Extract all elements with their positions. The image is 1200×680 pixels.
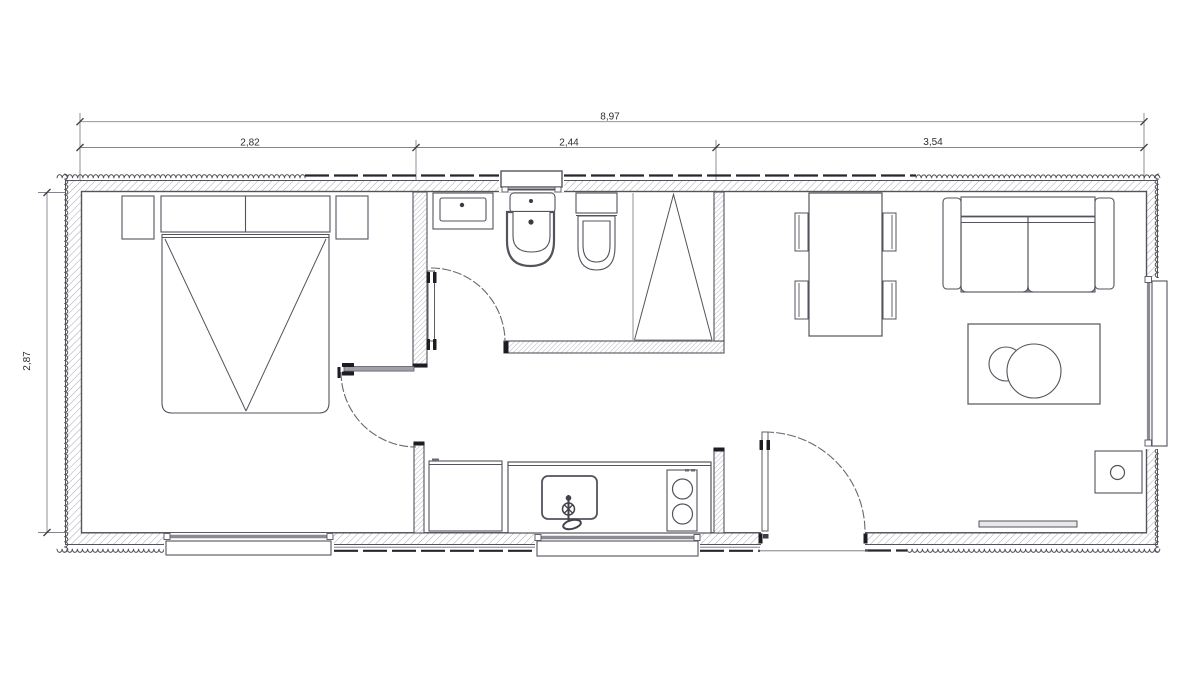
svg-text:3,54: 3,54 — [923, 137, 943, 148]
svg-text:2,82: 2,82 — [240, 138, 260, 149]
svg-text:2,44: 2,44 — [559, 138, 579, 149]
svg-text:8,97: 8,97 — [600, 112, 620, 123]
svg-text:2,87: 2,87 — [22, 351, 33, 371]
